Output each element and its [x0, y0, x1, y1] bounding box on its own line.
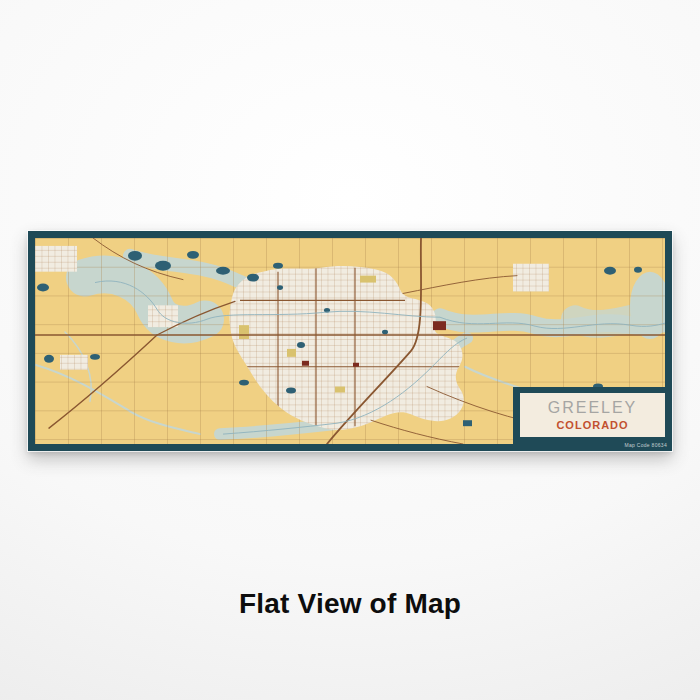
label-panel: GREELEY COLORADO [520, 393, 665, 437]
product-photo-background: GREELEY COLORADO Map Code 80634 Flat Vie… [0, 0, 700, 700]
map-code: Map Code 80634 [624, 442, 667, 448]
label-state: COLORADO [556, 419, 628, 431]
label-box: GREELEY COLORADO Map Code 80634 [513, 387, 672, 451]
caption: Flat View of Map [0, 588, 700, 620]
label-city: GREELEY [548, 399, 638, 417]
map-print: GREELEY COLORADO Map Code 80634 [28, 231, 672, 451]
